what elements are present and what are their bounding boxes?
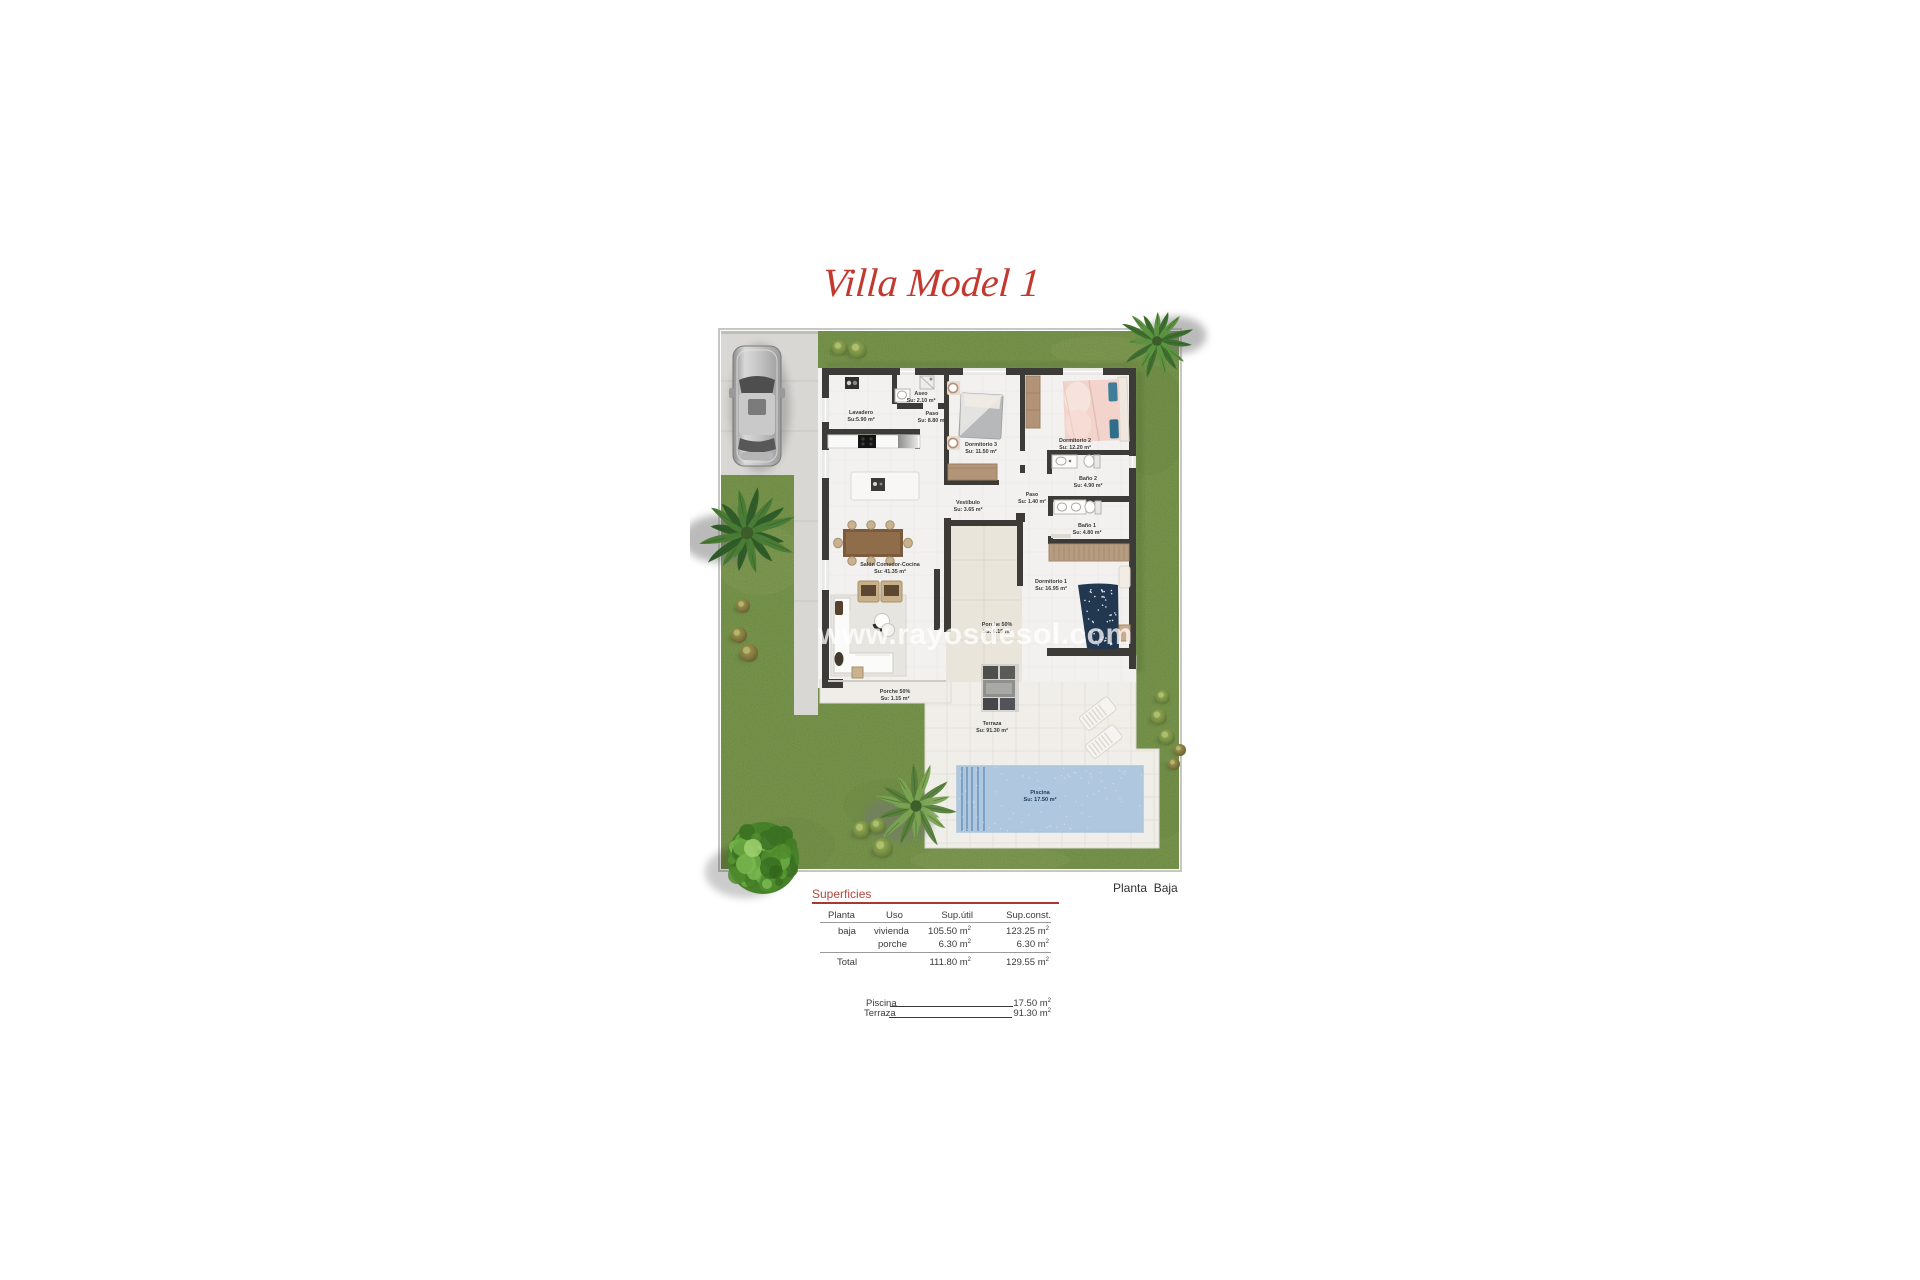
svg-text:Aseo: Aseo <box>914 391 928 397</box>
svg-text:Su: 3.65 m²: Su: 3.65 m² <box>954 507 983 513</box>
svg-text:Baño 1: Baño 1 <box>1078 523 1096 529</box>
svg-text:Dormitorio 3: Dormitorio 3 <box>965 442 997 448</box>
svg-text:Su: 11.50 m²: Su: 11.50 m² <box>965 449 997 455</box>
svg-text:Dormitorio 2: Dormitorio 2 <box>1059 438 1091 444</box>
svg-text:Su: 8.80 m²: Su: 8.80 m² <box>918 418 947 424</box>
svg-text:Su: 2.10 m²: Su: 2.10 m² <box>907 398 936 404</box>
svg-text:Su: 12.20 m²: Su: 12.20 m² <box>1059 445 1091 451</box>
svg-text:Terraza: Terraza <box>983 721 1003 727</box>
svg-text:Su: 16.95 m²: Su: 16.95 m² <box>1035 586 1067 592</box>
svg-text:Su: 1.40 m²: Su: 1.40 m² <box>1018 499 1046 505</box>
svg-text:Paso: Paso <box>926 411 940 417</box>
svg-text:Su:5.90 m²: Su:5.90 m² <box>847 417 874 423</box>
svg-text:Vestíbulo: Vestíbulo <box>956 500 981 506</box>
svg-text:Su: 1.15 m²: Su: 1.15 m² <box>881 696 910 702</box>
svg-text:Porche 50%: Porche 50% <box>880 689 911 695</box>
svg-text:Su: 4.80 m²: Su: 4.80 m² <box>1073 530 1102 536</box>
svg-text:Lavadero: Lavadero <box>849 410 874 416</box>
svg-text:Dormitorio 1: Dormitorio 1 <box>1035 579 1067 585</box>
svg-text:Su: 4.90 m²: Su: 4.90 m² <box>1074 483 1103 489</box>
svg-text:Su: 17.50 m²: Su: 17.50 m² <box>1024 796 1057 803</box>
svg-text:Piscina: Piscina <box>1030 790 1050 796</box>
svg-text:Su: 41.35 m²: Su: 41.35 m² <box>874 569 906 575</box>
svg-text:Baño 2: Baño 2 <box>1079 476 1097 482</box>
svg-text:Salón Comedor-Cocina: Salón Comedor-Cocina <box>860 562 921 568</box>
svg-text:Paso: Paso <box>1026 492 1038 498</box>
svg-text:Su: 91.30 m²: Su: 91.30 m² <box>976 728 1008 734</box>
